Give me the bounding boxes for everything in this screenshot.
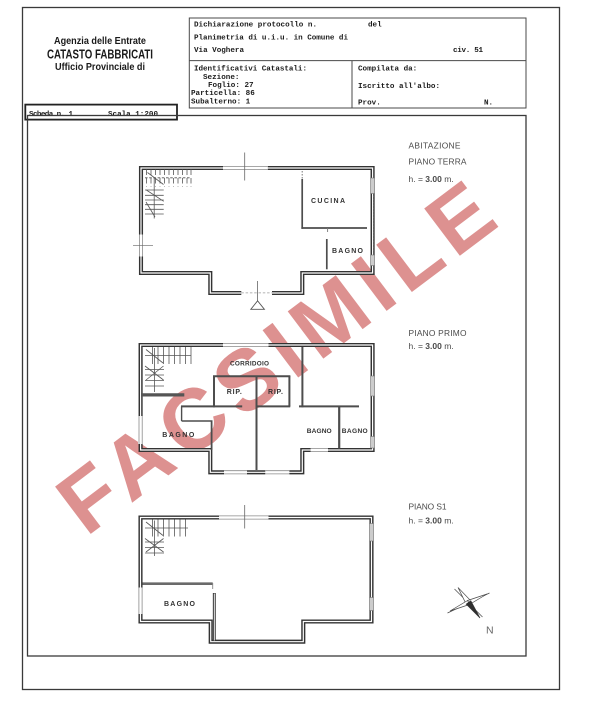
- svg-text:Particella: 86: Particella: 86: [191, 90, 255, 98]
- svg-text:h. = 3.00 m.: h. = 3.00 m.: [409, 174, 454, 184]
- svg-text:Prov.: Prov.: [358, 100, 381, 108]
- svg-text:PIANO PRIMO: PIANO PRIMO: [409, 328, 467, 338]
- svg-text:BAGNO: BAGNO: [164, 601, 196, 608]
- svg-text:Compilata da:: Compilata da:: [358, 66, 417, 74]
- svg-text:CATASTO FABBRICATI: CATASTO FABBRICATI: [47, 48, 153, 62]
- svg-text:BAGNO: BAGNO: [342, 428, 368, 435]
- svg-text:PIANO TERRA: PIANO TERRA: [409, 156, 467, 166]
- svg-text:BAGNO: BAGNO: [307, 428, 332, 435]
- svg-text:Iscritto all'albo:: Iscritto all'albo:: [358, 83, 440, 91]
- svg-text:PIANO S1: PIANO S1: [409, 502, 447, 512]
- svg-text:N.: N.: [484, 100, 493, 108]
- svg-text:Subalterno: 1: Subalterno: 1: [191, 98, 251, 106]
- svg-text:Sezione:: Sezione:: [203, 74, 239, 82]
- svg-text:del: del: [368, 22, 382, 30]
- svg-text:BAGNO: BAGNO: [162, 432, 195, 439]
- svg-text:Via Voghera: Via Voghera: [194, 47, 244, 55]
- svg-text:CORRIDOIO: CORRIDOIO: [230, 361, 269, 368]
- svg-text:civ. 51: civ. 51: [453, 47, 483, 55]
- svg-text:ABITAZIONE: ABITAZIONE: [409, 141, 461, 151]
- svg-text:h. = 3.00 m.: h. = 3.00 m.: [409, 341, 454, 351]
- svg-text:N: N: [486, 625, 494, 637]
- svg-text:RIP.: RIP.: [227, 389, 242, 396]
- svg-text:h. = 3.00 m.: h. = 3.00 m.: [409, 515, 454, 525]
- svg-text:RIP.: RIP.: [268, 389, 283, 396]
- svg-text:Dichiarazione protocollo n.: Dichiarazione protocollo n.: [194, 22, 317, 30]
- svg-text:Foglio: 27: Foglio: 27: [208, 82, 254, 90]
- svg-text:Planimetria di u.i.u. in Comun: Planimetria di u.i.u. in Comune di: [194, 35, 348, 43]
- svg-text:Identificativi Catastali:: Identificativi Catastali:: [194, 66, 307, 74]
- svg-text:BAGNO: BAGNO: [332, 248, 364, 255]
- svg-text:Ufficio Provinciale di: Ufficio Provinciale di: [55, 61, 145, 73]
- svg-text:Agenzia delle Entrate: Agenzia delle Entrate: [54, 35, 146, 47]
